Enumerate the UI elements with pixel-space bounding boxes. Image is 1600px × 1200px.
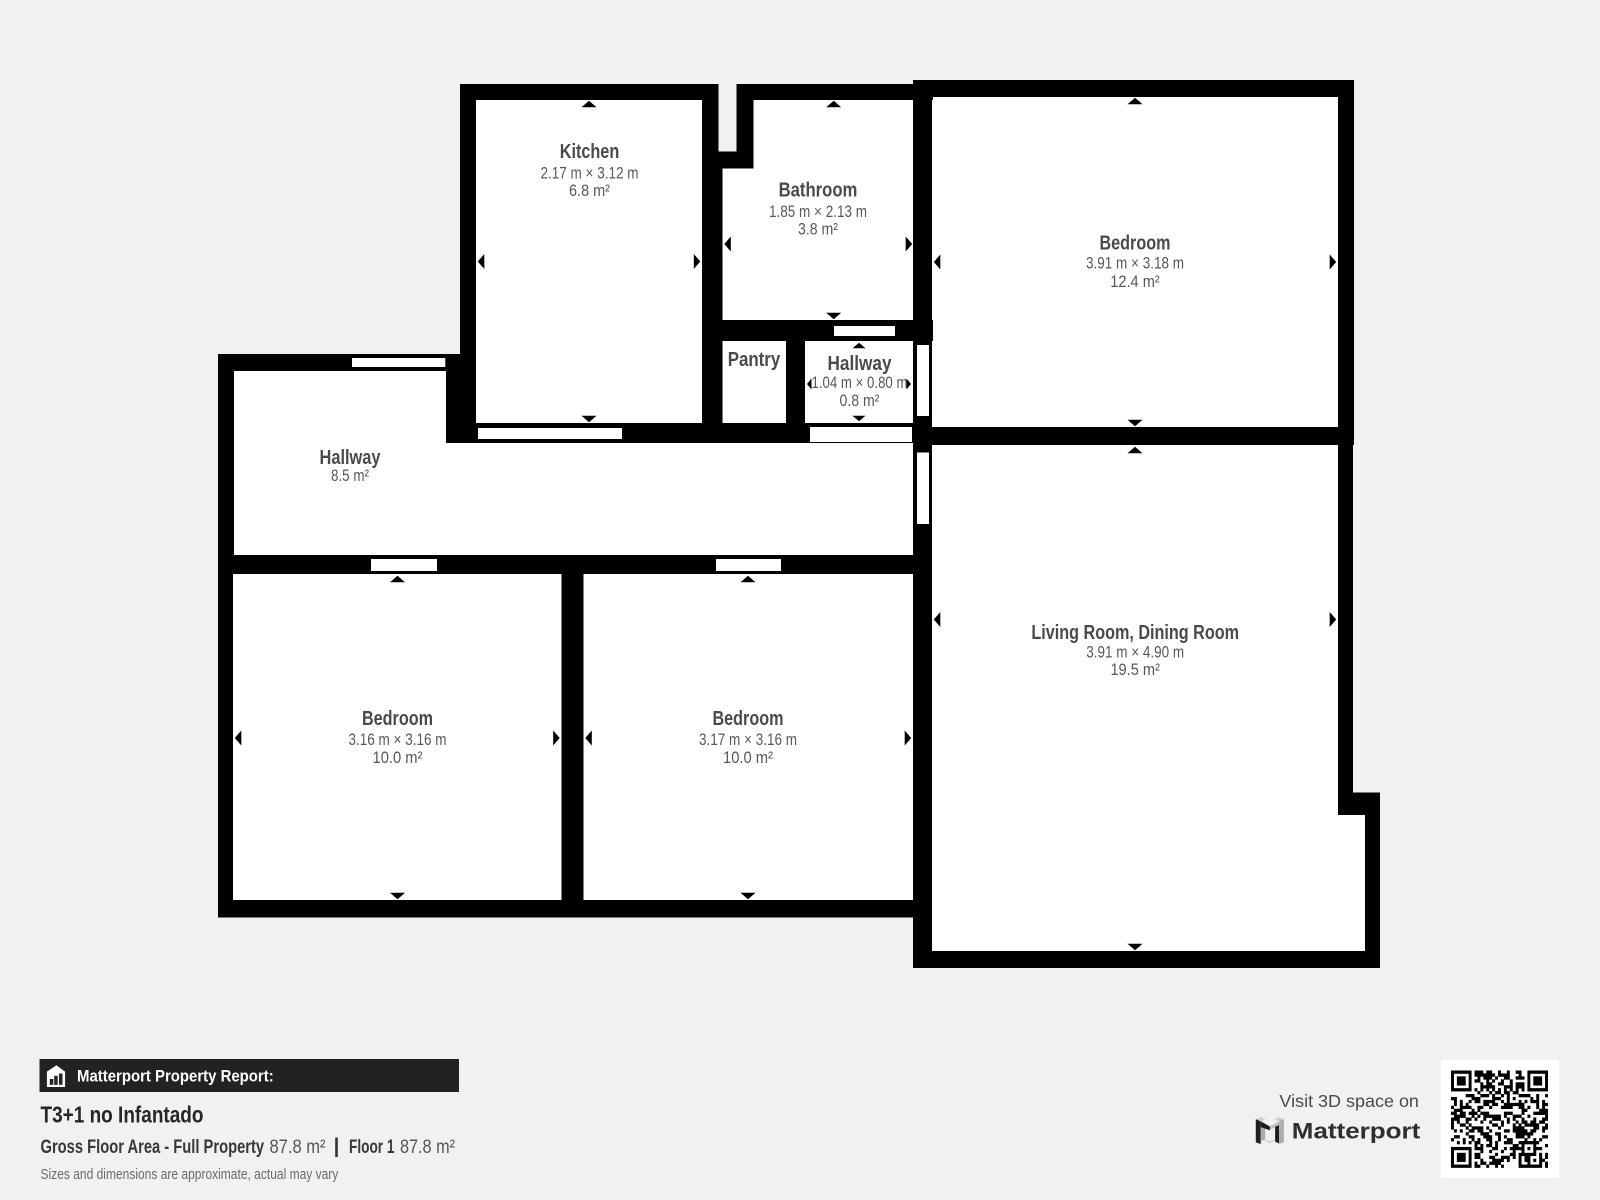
svg-text:1.85 m × 2.13 m: 1.85 m × 2.13 m (769, 202, 867, 221)
svg-text:19.5 m²: 19.5 m² (1110, 660, 1160, 679)
svg-text:Pantry: Pantry (728, 349, 781, 371)
svg-text:10.0 m²: 10.0 m² (373, 748, 423, 767)
svg-text:Floor 1: Floor 1 (349, 1137, 395, 1158)
svg-text:Matterport Property Report:: Matterport Property Report: (77, 1068, 274, 1086)
svg-text:87.8 m²: 87.8 m² (270, 1137, 326, 1158)
svg-text:6.8 m²: 6.8 m² (569, 181, 610, 200)
svg-text:T3+1 no Infantado: T3+1 no Infantado (41, 1102, 204, 1128)
svg-text:Bedroom: Bedroom (1100, 233, 1171, 255)
svg-text:3.16 m × 3.16 m: 3.16 m × 3.16 m (349, 730, 447, 749)
svg-text:Matterport: Matterport (1292, 1119, 1420, 1144)
svg-text:Bedroom: Bedroom (713, 708, 784, 730)
svg-text:87.8 m²: 87.8 m² (400, 1137, 455, 1158)
svg-text:3.91 m × 3.18 m: 3.91 m × 3.18 m (1086, 254, 1184, 273)
svg-text:Bathroom: Bathroom (779, 180, 858, 202)
svg-text:3.17 m × 3.16 m: 3.17 m × 3.16 m (699, 730, 797, 749)
svg-text:8.5 m²: 8.5 m² (331, 466, 369, 485)
svg-text:Sizes and dimensions are appro: Sizes and dimensions are approximate, ac… (41, 1166, 339, 1183)
svg-text:0.8 m²: 0.8 m² (840, 391, 880, 410)
svg-text:Bedroom: Bedroom (362, 708, 433, 730)
svg-text:2.17 m × 3.12 m: 2.17 m × 3.12 m (541, 164, 639, 183)
svg-text:Living Room, Dining Room: Living Room, Dining Room (1031, 622, 1239, 644)
svg-text:3.8 m²: 3.8 m² (798, 220, 838, 239)
svg-text:Visit 3D space on: Visit 3D space on (1279, 1091, 1419, 1111)
svg-text:1.04 m × 0.80 m: 1.04 m × 0.80 m (812, 373, 908, 392)
svg-text:12.4 m²: 12.4 m² (1110, 272, 1160, 291)
svg-text:Kitchen: Kitchen (560, 141, 620, 163)
svg-text:Hallway: Hallway (828, 353, 893, 375)
svg-text:10.0 m²: 10.0 m² (723, 748, 773, 767)
svg-text:Gross Floor Area - Full Proper: Gross Floor Area - Full Property (41, 1137, 265, 1158)
svg-text:3.91 m × 4.90 m: 3.91 m × 4.90 m (1086, 643, 1184, 662)
